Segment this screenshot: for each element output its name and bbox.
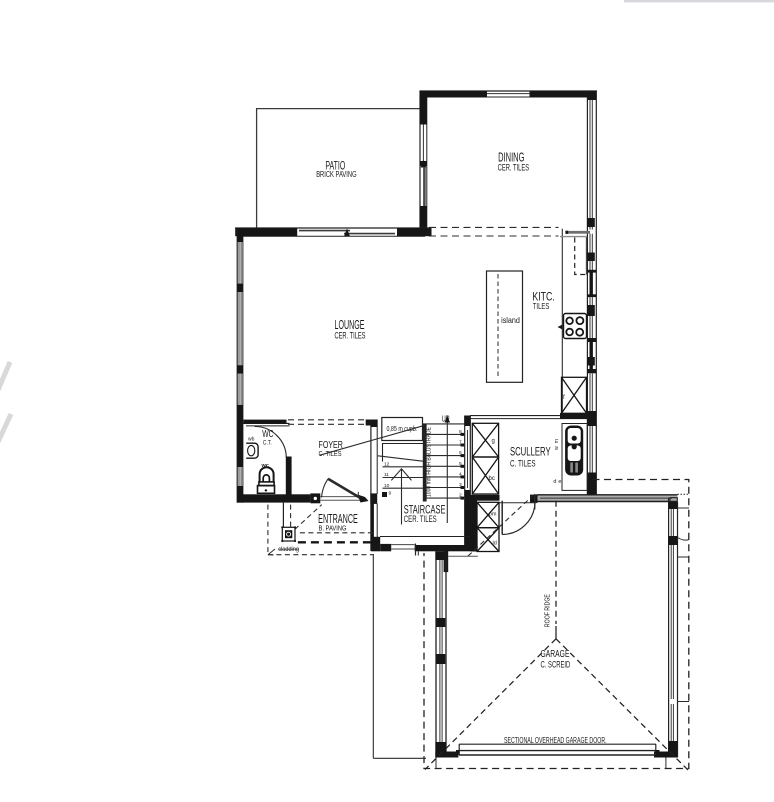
svg-text:2: 2 <box>459 493 462 499</box>
svg-text:island: island <box>501 316 520 325</box>
svg-text:bc: bc <box>489 476 495 482</box>
svg-text:ld: ld <box>493 541 497 547</box>
svg-text:5: 5 <box>459 461 462 467</box>
svg-text:f: f <box>563 395 565 401</box>
svg-text:BRICK PAVING: BRICK PAVING <box>316 170 356 179</box>
svg-text:1000 mm HIGH BALUSTRADE: 1000 mm HIGH BALUSTRADE <box>427 427 433 497</box>
svg-text:pm: pm <box>489 512 497 518</box>
svg-text:C. TILES: C. TILES <box>510 459 536 469</box>
svg-text:ROOF RIDGE: ROOF RIDGE <box>543 594 552 627</box>
svg-text:cladding: cladding <box>278 546 299 553</box>
svg-text:wc: wc <box>261 463 269 469</box>
svg-text:C.T.: C.T. <box>263 440 272 447</box>
svg-text:6: 6 <box>459 450 462 456</box>
svg-text:wm: wm <box>554 439 560 450</box>
svg-text:CER. TILES: CER. TILES <box>498 162 530 172</box>
svg-text:WC: WC <box>262 429 273 440</box>
svg-text:CER. TILES: CER. TILES <box>404 514 437 524</box>
svg-text:8: 8 <box>459 429 462 435</box>
svg-text:GARAGE: GARAGE <box>541 649 570 660</box>
svg-text:g: g <box>492 438 495 444</box>
svg-text:C. SCREID: C. SCREID <box>541 660 571 670</box>
svg-text:10: 10 <box>384 483 390 489</box>
svg-text:SECTIONAL OVERHEAD GARAGE DOOR: SECTIONAL OVERHEAD GARAGE DOOR. <box>504 735 607 745</box>
svg-text:TILES: TILES <box>533 301 550 311</box>
svg-text:4: 4 <box>459 471 462 477</box>
svg-text:SCULLERY: SCULLERY <box>510 445 551 458</box>
svg-text:CER. TILES: CER. TILES <box>335 330 366 340</box>
svg-text:9: 9 <box>389 491 392 497</box>
svg-text:11: 11 <box>384 472 389 478</box>
svg-text:wb: wb <box>248 437 255 443</box>
svg-text:B. PAVING: B. PAVING <box>319 524 347 533</box>
svg-text:7: 7 <box>459 440 462 446</box>
svg-text:3: 3 <box>459 482 462 488</box>
svg-text:de: de <box>553 479 561 485</box>
svg-text:12: 12 <box>384 462 390 468</box>
